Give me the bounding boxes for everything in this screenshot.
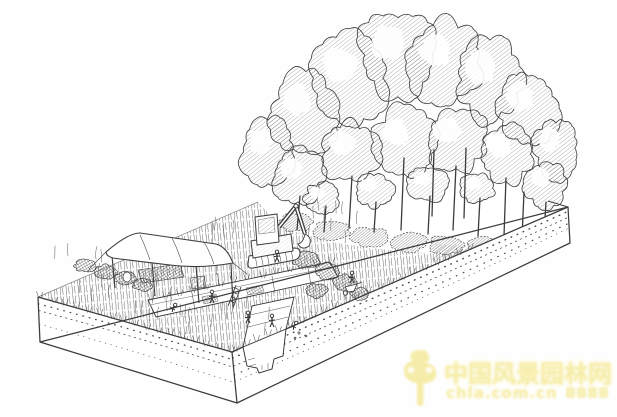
barrel-under-tent <box>123 272 131 282</box>
dark-shrub <box>73 259 96 272</box>
excavator-cab-window <box>258 217 275 234</box>
excavation-illustration <box>0 0 617 417</box>
tree <box>406 167 449 202</box>
tree <box>428 108 487 173</box>
excavator-boom-joint <box>294 204 298 208</box>
sketch-page: 中国风景园林网 chla.com.cn <box>0 0 617 417</box>
